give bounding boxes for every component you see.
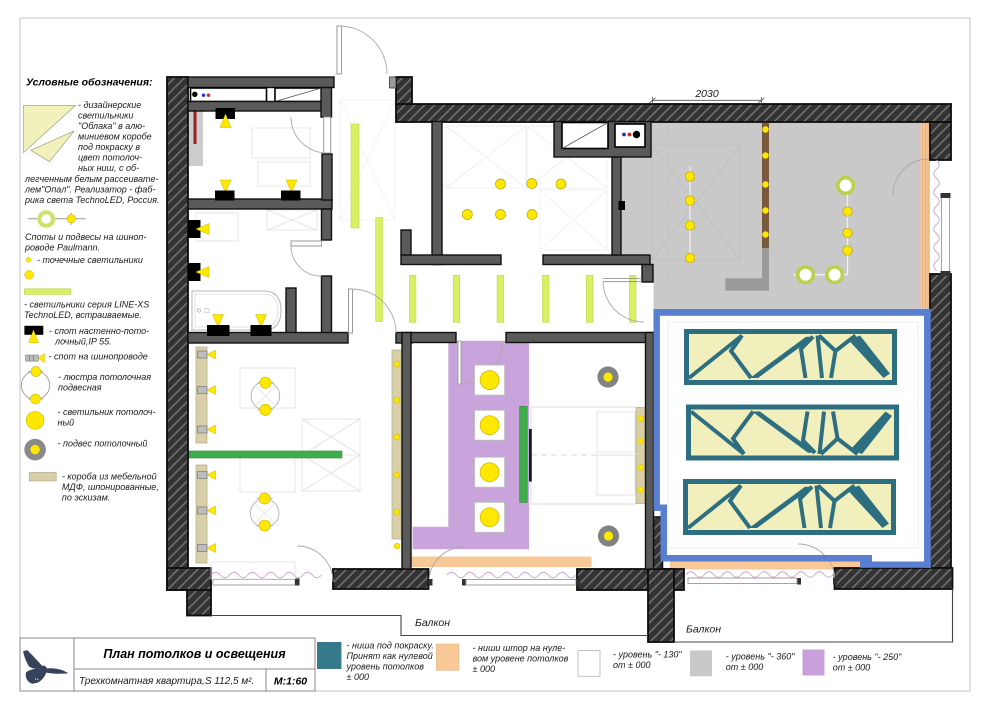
svg-text:Принят как нулевой: Принят как нулевой xyxy=(347,651,433,661)
svg-text:легченным белым рассеивате-: легченным белым рассеивате- xyxy=(24,174,159,184)
svg-text:от ± 000: от ± 000 xyxy=(613,660,650,670)
svg-text:уровень потолков: уровень потолков xyxy=(346,662,425,672)
svg-text:- люстра потолочная: - люстра потолочная xyxy=(58,372,151,382)
svg-text:цвет потолоч-: цвет потолоч- xyxy=(78,153,142,163)
svg-text:± 000: ± 000 xyxy=(347,672,369,682)
svg-text:лем"Опал". Реализатор - фаб-: лем"Опал". Реализатор - фаб- xyxy=(24,185,155,195)
svg-text:- уровень "- 130": - уровень "- 130" xyxy=(613,650,682,660)
svg-text:- короба из мебельной: - короба из мебельной xyxy=(62,472,157,482)
svg-text:План потолков и освещения: План потолков и освещения xyxy=(103,647,286,661)
svg-text:- ниши штор на нуле-: - ниши штор на нуле- xyxy=(473,643,566,653)
svg-text:вом уровене потолков: вом уровене потолков xyxy=(473,654,569,664)
svg-text:М:1:60: М:1:60 xyxy=(274,676,307,688)
svg-text:подвесная: подвесная xyxy=(58,383,102,393)
svg-text:роводе Paulmann.: роводе Paulmann. xyxy=(24,243,100,253)
svg-text:Балкон: Балкон xyxy=(686,624,721,636)
svg-text:миниевом коробе: миниевом коробе xyxy=(78,132,152,142)
svg-text:- уровень "- 360": - уровень "- 360" xyxy=(726,652,795,662)
svg-text:рика света TechnoLED, Россия.: рика света TechnoLED, Россия. xyxy=(24,195,160,205)
svg-text:- спот настенно-пото-: - спот настенно-пото- xyxy=(49,326,149,336)
svg-text:от ± 000: от ± 000 xyxy=(833,663,870,673)
svg-text:от ± 000: от ± 000 xyxy=(726,662,763,672)
svg-text:Споты и подвесы на шиноп-: Споты и подвесы на шиноп- xyxy=(25,232,146,242)
svg-text:"Облака" в алю-: "Облака" в алю- xyxy=(78,121,145,131)
svg-text:- подвес потолочный: - подвес потолочный xyxy=(58,439,148,449)
svg-text:2030: 2030 xyxy=(694,88,719,100)
svg-text:ный: ный xyxy=(58,418,75,428)
svg-text:Трехкомнатная квартира,S 112,5: Трехкомнатная квартира,S 112,5 м². xyxy=(79,676,254,687)
svg-text:по эскизам.: по эскизам. xyxy=(62,493,110,503)
svg-text:- дизайнерские: - дизайнерские xyxy=(78,100,141,110)
svg-text:светильники: светильники xyxy=(78,111,133,121)
svg-text:- уровень "- 250": - уровень "- 250" xyxy=(833,652,902,662)
svg-text:± 000: ± 000 xyxy=(473,664,495,674)
svg-text:- ниша под покраску.: - ниша под покраску. xyxy=(347,641,434,651)
svg-text:- светильник потолоч-: - светильник потолоч- xyxy=(58,407,156,417)
svg-text:под покраску в: под покраску в xyxy=(78,142,140,152)
svg-text:ных ниш, с об-: ных ниш, с об- xyxy=(78,163,139,173)
svg-text:- точечные светильники: - точечные светильники xyxy=(37,255,143,265)
svg-text:МДФ, шпонированные,: МДФ, шпонированные, xyxy=(62,482,159,492)
svg-text:TechnoLED, встраиваемые.: TechnoLED, встраиваемые. xyxy=(24,310,142,320)
svg-text:Балкон: Балкон xyxy=(415,617,450,629)
svg-text:- спот на шинопроводе: - спот на шинопроводе xyxy=(49,352,148,362)
svg-text:лочный,IP 55.: лочный,IP 55. xyxy=(54,337,112,347)
svg-text:Условные обозначения:: Условные обозначения: xyxy=(26,77,153,89)
svg-text:- светильники серия LINE-XS: - светильники серия LINE-XS xyxy=(24,300,149,310)
